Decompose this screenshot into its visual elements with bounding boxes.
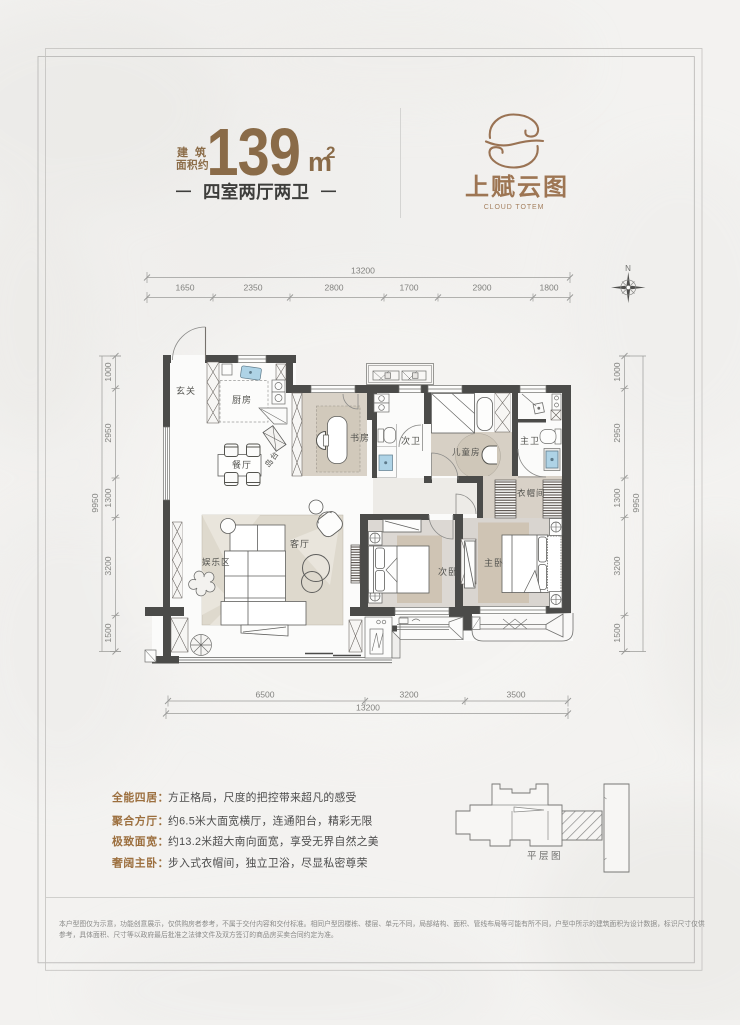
svg-text:餐厅: 餐厅 — [232, 459, 252, 470]
svg-text:1700: 1700 — [399, 283, 418, 293]
svg-text:1000: 1000 — [612, 362, 622, 381]
svg-text:9950: 9950 — [631, 493, 641, 512]
svg-text:2900: 2900 — [472, 283, 491, 293]
svg-text:1300: 1300 — [612, 488, 622, 507]
svg-text:玄关: 玄关 — [176, 385, 196, 396]
svg-text:约13.2米超大南向面宽，享受无界自然之美: 约13.2米超大南向面宽，享受无界自然之美 — [168, 834, 379, 848]
svg-text:方正格局，尺度的把控带来超凡的感受: 方正格局，尺度的把控带来超凡的感受 — [168, 790, 357, 804]
svg-text:上赋云图: 上赋云图 — [465, 174, 569, 201]
svg-text:建: 建 — [177, 145, 189, 159]
svg-text:主卫: 主卫 — [520, 435, 540, 446]
svg-text:聚合方厅：: 聚合方厅： — [111, 814, 169, 828]
svg-text:6500: 6500 — [255, 690, 274, 700]
svg-text:139: 139 — [207, 115, 301, 190]
svg-text:CLOUD TOTEM: CLOUD TOTEM — [484, 204, 545, 211]
svg-text:3200: 3200 — [612, 556, 622, 575]
svg-text:1650: 1650 — [175, 283, 194, 293]
svg-text:面积约: 面积约 — [176, 159, 209, 172]
svg-text:次卫: 次卫 — [401, 435, 421, 446]
svg-text:1300: 1300 — [103, 488, 113, 507]
svg-text:全能四居：: 全能四居： — [111, 790, 169, 804]
svg-text:厨房: 厨房 — [232, 394, 252, 405]
svg-text:极致面宽：: 极致面宽： — [112, 834, 169, 848]
svg-text:2: 2 — [326, 143, 335, 162]
svg-text:2350: 2350 — [243, 283, 262, 293]
svg-text:3500: 3500 — [506, 690, 525, 700]
svg-text:衣帽间: 衣帽间 — [517, 488, 546, 498]
svg-text:3200: 3200 — [399, 690, 418, 700]
svg-text:N: N — [625, 264, 631, 273]
svg-text:儿童房: 儿童房 — [452, 447, 481, 457]
svg-text:步入式衣帽间，独立卫浴，尽显私密尊荣: 步入式衣帽间，独立卫浴，尽显私密尊荣 — [168, 856, 368, 870]
svg-text:约6.5米大面宽横厅，连通阳台，精彩无限: 约6.5米大面宽横厅，连通阳台，精彩无限 — [168, 814, 373, 828]
svg-text:13200: 13200 — [351, 266, 375, 276]
svg-text:娱乐区: 娱乐区 — [202, 557, 231, 567]
svg-text:四室两厅两卫: 四室两厅两卫 — [203, 182, 309, 202]
svg-text:1500: 1500 — [612, 623, 622, 642]
svg-text:9950: 9950 — [90, 493, 100, 512]
svg-text:次卧: 次卧 — [438, 566, 458, 577]
svg-text:1000: 1000 — [103, 362, 113, 381]
svg-text:主卧: 主卧 — [484, 557, 504, 568]
svg-text:书房: 书房 — [350, 432, 370, 443]
svg-text:参考，具体面积、尺寸等以政府最后批准之法律文件及双方签订的商: 参考，具体面积、尺寸等以政府最后批准之法律文件及双方签订的商品房买卖合同约定为准… — [59, 930, 338, 939]
svg-text:平层图: 平层图 — [527, 851, 563, 862]
svg-text:筑: 筑 — [195, 145, 206, 159]
svg-text:客厅: 客厅 — [290, 538, 310, 549]
svg-text:1800: 1800 — [539, 283, 558, 293]
svg-text:3200: 3200 — [103, 556, 113, 575]
svg-text:1500: 1500 — [103, 623, 113, 642]
svg-text:2800: 2800 — [324, 283, 343, 293]
svg-text:2950: 2950 — [103, 423, 113, 442]
svg-text:奢阔主卧：: 奢阔主卧： — [111, 856, 169, 870]
svg-text:13200: 13200 — [356, 703, 380, 713]
svg-text:2950: 2950 — [612, 423, 622, 442]
svg-text:本户型图仅为示意，功能创意展示，仅供购房者参考，不属于交付内: 本户型图仅为示意，功能创意展示，仅供购房者参考，不属于交付内容和交付标准。相同户… — [59, 919, 705, 928]
